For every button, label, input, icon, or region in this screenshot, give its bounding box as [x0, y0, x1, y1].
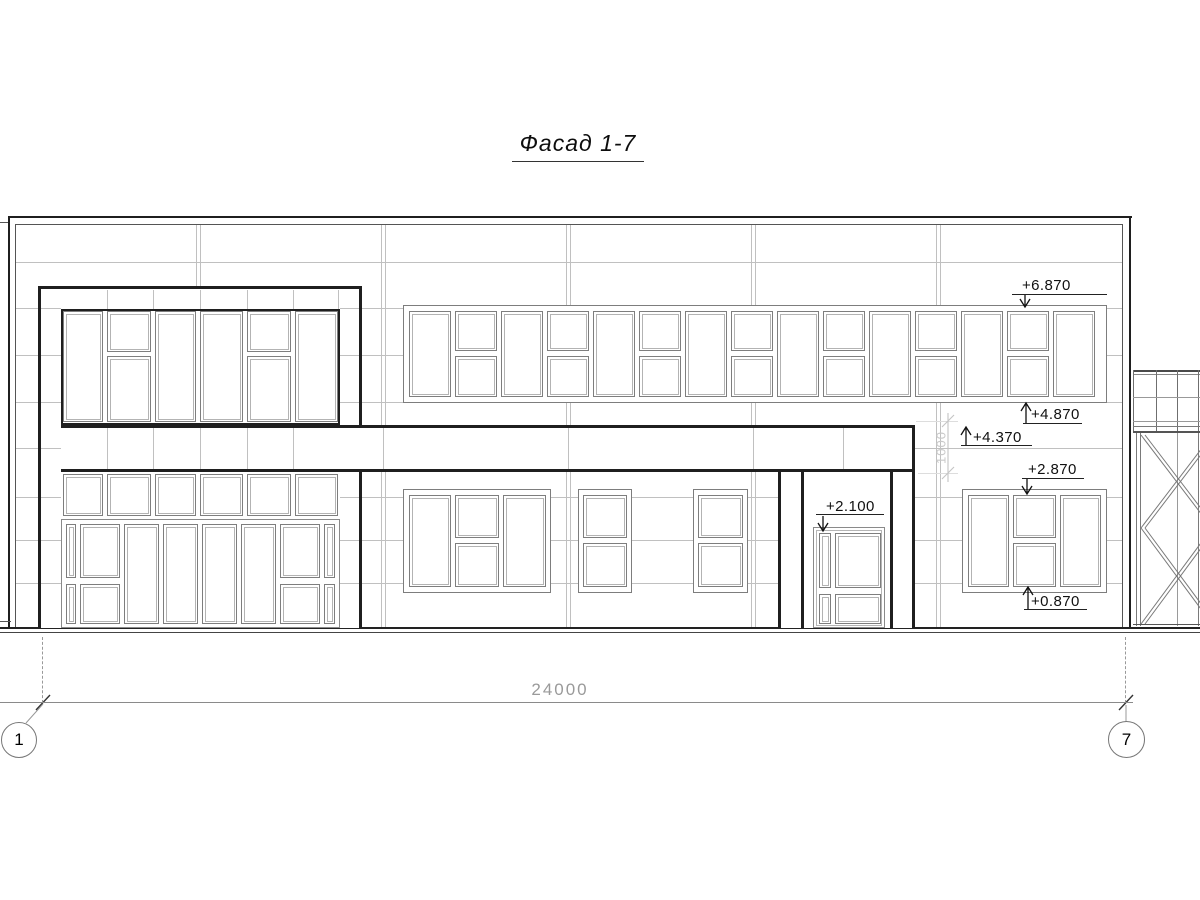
pane-inner-sash: [412, 314, 449, 395]
portal-pylon-right-inner: [890, 472, 893, 628]
pane-inner-sash: [838, 536, 879, 586]
glazing-pane: [295, 474, 338, 516]
band-joint: [293, 428, 294, 469]
tower-margin-joint: [41, 583, 61, 584]
elevation-ribbon-bottom-line: [1023, 423, 1082, 424]
pane-inner-sash: [1016, 498, 1054, 536]
glazing-pane: [295, 311, 338, 422]
glazing-pane: [915, 311, 957, 351]
pane-inner-sash: [596, 314, 633, 395]
railing-kick-top: [1133, 426, 1200, 427]
tower-margin-joint: [340, 497, 359, 498]
glazing-pane: [1060, 495, 1101, 587]
pane-inner-sash: [69, 527, 74, 576]
glazing-pane: [915, 356, 957, 397]
glazing-pane: [107, 474, 151, 516]
pane-inner-sash: [250, 314, 289, 350]
tower-top-joint: [200, 290, 201, 309]
pane-inner-sash: [327, 587, 333, 622]
pane-inner-sash: [250, 359, 289, 420]
grid-line-connectors: [26, 704, 1126, 723]
band-joint: [107, 428, 108, 469]
glazing-pane: [501, 311, 543, 397]
glazing-pane: [685, 311, 727, 397]
glazing-pane: [63, 474, 103, 516]
pane-inner-sash: [550, 359, 587, 395]
glazing-pane: [869, 311, 911, 397]
pane-inner-sash: [918, 359, 955, 395]
tower-margin-joint: [340, 308, 359, 309]
pane-inner-sash: [458, 314, 495, 349]
pane-inner-sash: [110, 359, 149, 420]
left-wall-inner: [15, 224, 16, 628]
pane-inner-sash: [158, 314, 194, 420]
glazing-pane: [247, 474, 291, 516]
elevation-band-top: +4.370: [973, 429, 1022, 446]
tower-margin-joint: [41, 448, 61, 449]
pane-inner-sash: [971, 498, 1007, 585]
portal-pylon-left-inner: [801, 472, 804, 628]
pane-inner-sash: [66, 314, 101, 420]
tower-top-joint: [153, 290, 154, 309]
pane-inner-sash: [642, 314, 679, 349]
elevation-window-top: +2.870: [1028, 461, 1077, 478]
extension-line-axis-1: [42, 637, 43, 703]
pane-inner-sash: [826, 314, 863, 349]
pane-inner-sash: [412, 498, 449, 585]
right-wall-inner: [1122, 224, 1123, 628]
pane-inner-sash: [458, 359, 495, 395]
pane-inner-sash: [1056, 314, 1093, 395]
glazing-pane: [66, 584, 76, 624]
pane-inner-sash: [918, 314, 955, 349]
pane-inner-sash: [1016, 546, 1054, 585]
pane-inner-sash: [203, 477, 241, 514]
glazing-pane: [777, 311, 819, 397]
pane-inner-sash: [872, 314, 909, 395]
railing-baluster: [1177, 370, 1178, 432]
panel-joint-horizontal: [16, 262, 1122, 263]
pane-inner-sash: [283, 527, 318, 576]
glazing-pane: [409, 495, 451, 587]
glazing-pane: [409, 311, 451, 397]
glazing-pane: [1013, 543, 1056, 587]
elevation-ribbon-top: +6.870: [1022, 277, 1071, 294]
band-joint: [200, 428, 201, 469]
pane-inner-sash: [244, 527, 274, 622]
pane-inner-sash: [69, 587, 74, 622]
glazing-pane: [819, 533, 831, 588]
pane-inner-sash: [1010, 314, 1047, 349]
pane-inner-sash: [822, 536, 829, 586]
glazing-pane: [163, 524, 198, 624]
glazing-pane: [823, 356, 865, 397]
pane-inner-sash: [1063, 498, 1099, 585]
elevation-window-bottom-line: [1024, 609, 1087, 610]
elevation-door-top-line: [816, 514, 884, 515]
railing-baluster: [1156, 370, 1157, 432]
glazing-pane: [280, 524, 320, 578]
glazing-pane: [1053, 311, 1095, 397]
railing-baluster: [1198, 370, 1199, 432]
brace-post-left-a: [1136, 433, 1137, 626]
tower-margin-joint: [41, 308, 61, 309]
pane-inner-sash: [838, 597, 879, 622]
right-wall-outer: [1129, 216, 1131, 628]
railing-mid-rail: [1133, 397, 1200, 398]
pane-inner-sash: [701, 498, 741, 536]
plinth-left: [0, 621, 11, 622]
glazing-pane: [698, 543, 743, 587]
glazing-pane: [731, 356, 773, 397]
pane-inner-sash: [964, 314, 1001, 395]
glazing-pane: [819, 594, 831, 624]
pane-inner-sash: [298, 477, 336, 514]
glazing-pane: [698, 495, 743, 538]
left-wall-outer: [8, 216, 10, 628]
band-joint: [383, 428, 384, 469]
pane-inner-sash: [110, 477, 149, 514]
pane-inner-sash: [506, 498, 544, 585]
glazing-pane: [835, 594, 881, 624]
pane-inner-sash: [642, 359, 679, 395]
glazing-pane: [639, 311, 681, 351]
tower-margin-joint: [41, 540, 61, 541]
pane-inner-sash: [550, 314, 587, 349]
overall-dimension: 24000: [430, 680, 690, 700]
glazing-pane: [1013, 495, 1056, 538]
pane-inner-sash: [110, 314, 149, 350]
extension-line-axis-7: [1125, 637, 1126, 703]
glazing-pane: [731, 311, 773, 351]
tower-top-joint: [338, 290, 339, 309]
tower-margin-joint: [41, 402, 61, 403]
glazing-pane: [503, 495, 546, 587]
glazing-pane: [455, 543, 499, 587]
pane-inner-sash: [586, 498, 625, 536]
pane-inner-sash: [822, 597, 829, 622]
pane-inner-sash: [734, 314, 771, 349]
glazing-pane: [593, 311, 635, 397]
arrow-band-top: [961, 427, 971, 446]
brace-post-center: [1177, 433, 1178, 626]
tower-top-joint: [293, 290, 294, 309]
glazing-pane: [80, 524, 120, 578]
glazing-pane: [961, 311, 1003, 397]
portal-pylon-left-outer: [778, 472, 781, 628]
glazing-pane: [124, 524, 159, 624]
pane-inner-sash: [780, 314, 817, 395]
grid-bubble-1: 1: [1, 722, 37, 758]
glazing-pane: [247, 311, 291, 352]
railing-top-rail-inner: [1133, 374, 1200, 375]
glazing-pane: [455, 495, 499, 538]
dimension-line: [0, 702, 1133, 703]
tower-top-joint: [107, 290, 108, 309]
glazing-pane: [155, 474, 196, 516]
glazing-pane: [583, 495, 627, 538]
glazing-pane: [107, 356, 151, 422]
ground-line-lower: [0, 632, 1200, 633]
glazing-pane: [1007, 311, 1049, 351]
band-joint: [753, 428, 754, 469]
elevation-door-top: +2.100: [826, 498, 875, 515]
glazing-pane: [455, 311, 497, 351]
pane-inner-sash: [205, 527, 235, 622]
tower-margin-joint: [340, 355, 359, 356]
pane-inner-sash: [688, 314, 725, 395]
glazing-pane: [823, 311, 865, 351]
band-joint: [153, 428, 154, 469]
drawing-sheet: Фасад 1-7 +6.870 +4.870 +4.370 +2.870: [0, 0, 1200, 900]
pane-inner-sash: [504, 314, 541, 395]
pane-inner-sash: [127, 527, 157, 622]
x-brace-struts: [1141, 435, 1200, 624]
pane-inner-sash: [826, 359, 863, 395]
pane-inner-sash: [327, 527, 333, 576]
band-joint: [247, 428, 248, 469]
pane-inner-sash: [283, 587, 318, 622]
glazing-pane: [200, 311, 243, 422]
railing-top-rail: [1133, 370, 1200, 372]
spandrel-band: [61, 425, 915, 472]
grid-bubble-7: 7: [1108, 721, 1145, 758]
glazing-pane: [247, 356, 291, 422]
glazing-pane: [1007, 356, 1049, 397]
railing-low-rail: [1133, 421, 1200, 422]
elevation-window-top-line: [1022, 478, 1084, 479]
elevation-band-top-line: [961, 445, 1032, 446]
elevation-window-bottom: +0.870: [1031, 593, 1080, 610]
pane-inner-sash: [166, 527, 196, 622]
glazing-pane: [280, 584, 320, 624]
tower-margin-joint: [340, 583, 359, 584]
pane-inner-sash: [298, 314, 336, 420]
glazing-pane: [324, 584, 335, 624]
glazing-pane: [63, 311, 103, 422]
glazing-pane: [66, 524, 76, 578]
brace-post-left-b: [1140, 433, 1141, 626]
drawing-title-row: Фасад 1-7: [178, 130, 978, 162]
pane-inner-sash: [203, 314, 241, 420]
roof-line: [8, 216, 1132, 218]
glazing-pane: [80, 584, 120, 624]
railing-baluster: [1133, 370, 1134, 432]
band-offset-dimension: 1000: [934, 420, 947, 476]
elevation-ribbon-top-line: [1012, 294, 1107, 295]
parapet-line: [16, 224, 1123, 225]
pane-inner-sash: [734, 359, 771, 395]
pane-inner-sash: [458, 498, 497, 536]
glazing-pane: [200, 474, 243, 516]
tower-margin-joint: [41, 497, 61, 498]
band-joint: [568, 428, 569, 469]
glazing-pane: [583, 543, 627, 587]
glazing-pane: [241, 524, 276, 624]
pane-inner-sash: [586, 546, 625, 585]
pane-inner-sash: [701, 546, 741, 585]
band-joint: [843, 428, 844, 469]
arrow-ribbon-bottom: [1021, 403, 1031, 424]
glazing-pane: [324, 524, 335, 578]
tower-margin-joint: [340, 402, 359, 403]
pane-inner-sash: [66, 477, 101, 514]
pane-inner-sash: [250, 477, 289, 514]
glazing-pane: [547, 356, 589, 397]
glazing-pane: [547, 311, 589, 351]
glazing-pane: [968, 495, 1009, 587]
pane-inner-sash: [83, 587, 118, 622]
glazing-pane: [835, 533, 881, 588]
tower-margin-joint: [41, 355, 61, 356]
pane-inner-sash: [158, 477, 194, 514]
stair-base-line: [1133, 624, 1200, 625]
portal-pylon-right-outer: [912, 425, 915, 628]
glazing-pane: [155, 311, 196, 422]
brace-post-right: [1198, 433, 1199, 626]
tower-margin-joint: [340, 540, 359, 541]
pane-inner-sash: [83, 527, 118, 576]
glazing-pane: [455, 356, 497, 397]
tower-top-joint: [247, 290, 248, 309]
glazing-pane: [107, 311, 151, 352]
glazing-pane: [202, 524, 237, 624]
elevation-ribbon-bottom: +4.870: [1031, 406, 1080, 423]
pane-inner-sash: [458, 546, 497, 585]
railing-kick-bottom: [1133, 431, 1200, 433]
drawing-title: Фасад 1-7: [512, 130, 645, 162]
pane-inner-sash: [1010, 359, 1047, 395]
glazing-pane: [639, 356, 681, 397]
